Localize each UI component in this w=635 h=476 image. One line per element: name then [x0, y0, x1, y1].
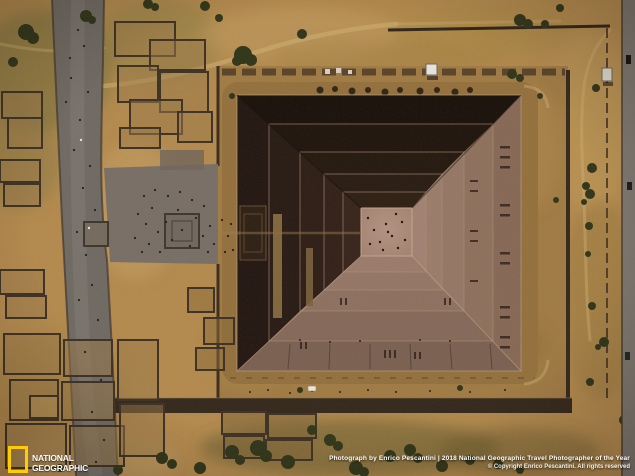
photo-canvas: [0, 0, 635, 476]
vignette: [0, 0, 635, 476]
natgeo-word-national: NATIONAL: [32, 453, 88, 463]
credit-line-1: Photograph by Enrico Pescantini | 2018 N…: [329, 455, 630, 462]
photo-credits: Photograph by Enrico Pescantini | 2018 N…: [329, 455, 630, 471]
natgeo-word-geographic: GEOGRAPHIC: [32, 463, 88, 473]
natgeo-yellow-frame-icon: [8, 446, 28, 473]
national-geographic-logo: NATIONAL GEOGRAPHIC: [8, 446, 88, 473]
credit-line-2: © Copyright Enrico Pescantini. All right…: [329, 464, 630, 470]
aerial-photo-teotihuacan: Photograph by Enrico Pescantini | 2018 N…: [0, 0, 635, 476]
natgeo-wordmark: NATIONAL GEOGRAPHIC: [32, 453, 88, 473]
